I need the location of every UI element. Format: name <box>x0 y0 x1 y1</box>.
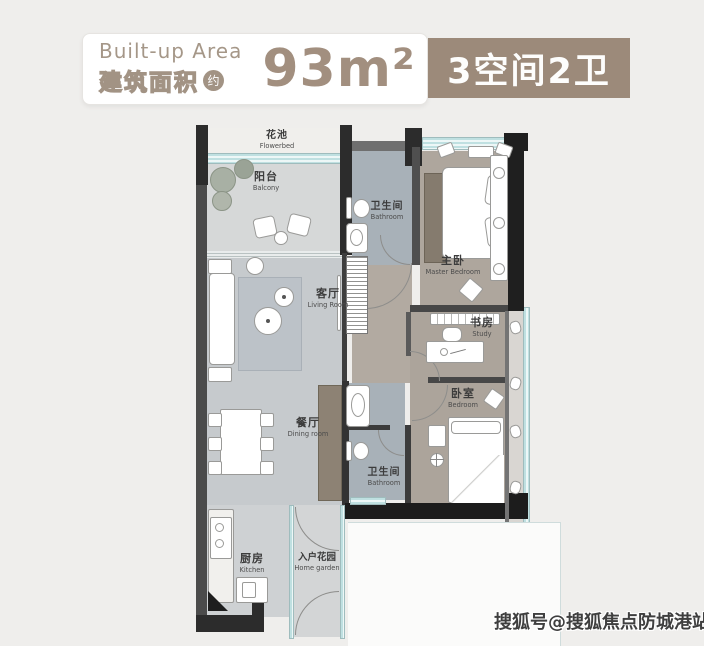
wall-bedroom-bottom <box>345 503 526 519</box>
lamp-cross <box>430 459 444 460</box>
label-bedroom: 卧室 Bedroom <box>434 388 492 409</box>
area-value: 93m² <box>257 43 427 95</box>
wardrobe-knob-icon <box>493 167 505 179</box>
dining-chair <box>208 437 222 451</box>
desk-decor-icon <box>440 348 448 356</box>
plant-icon <box>212 191 232 211</box>
label-master-bedroom: 主卧 Master Bedroom <box>422 255 484 276</box>
balcony-sliding-door <box>206 251 342 258</box>
fridge-triangle-icon <box>208 591 228 611</box>
wall-corridor-study <box>406 312 411 356</box>
bed-blanket <box>448 455 504 503</box>
garden-window-right <box>340 505 345 639</box>
wall-study-bedroom <box>428 377 508 383</box>
label-kitchen: 厨房 Kitchen <box>224 553 280 574</box>
dining-table <box>220 409 262 475</box>
label-balcony: 阳台 Balcony <box>236 171 296 192</box>
storage-cabinet <box>318 385 342 501</box>
toilet-tank <box>346 197 352 219</box>
bed-pillow <box>451 421 501 434</box>
dining-chair <box>260 461 274 475</box>
label-bathroom-lower: 卫生间 Bathroom <box>358 467 410 487</box>
lamp-cross <box>436 453 437 467</box>
label-dining-room: 餐厅 Dining room <box>274 417 342 438</box>
wall-bath-upper-top <box>352 141 412 151</box>
label-flowerbed: 花池 Flowerbed <box>206 130 348 150</box>
area-labels: Built-up Area 建筑面积 约 <box>83 41 257 97</box>
spec-badge: 3空间2卫 <box>428 38 630 98</box>
wall-bath-master <box>412 147 420 265</box>
wall-bedroom-bath <box>405 425 411 507</box>
area-label-zh: 建筑面积 <box>99 63 199 97</box>
sink-basin <box>242 582 256 598</box>
toilet-icon <box>353 442 369 460</box>
nightstand <box>428 425 446 447</box>
approx-circle-icon: 约 <box>203 70 224 91</box>
side-table <box>208 367 232 382</box>
wall-left <box>196 125 207 622</box>
flowerbed-window <box>206 153 348 164</box>
plant-icon <box>210 167 236 193</box>
floor-lamp-icon <box>246 257 264 275</box>
label-living-room: 客厅 Living Room <box>294 288 362 309</box>
sofa <box>209 273 235 365</box>
burner-icon <box>215 523 224 532</box>
dining-chair <box>260 413 274 427</box>
sink-basin <box>351 393 365 417</box>
wall-master-study <box>410 305 508 312</box>
label-home-garden: 入户花园 Home garden <box>291 553 343 572</box>
toilet-tank <box>346 441 352 461</box>
label-study: 书房 Study <box>458 317 506 338</box>
wall-master-right <box>508 147 524 311</box>
area-badge: Built-up Area 建筑面积 约 93m² <box>82 33 428 105</box>
decor-dot <box>282 295 286 299</box>
wall-corner-bottom-right <box>508 493 528 519</box>
wardrobe-knob-icon <box>493 217 505 229</box>
watermark: 搜狐号@搜狐焦点防城港站 <box>494 608 702 634</box>
burner-icon <box>215 539 224 548</box>
garden-window-left <box>289 505 294 639</box>
bath-lower-window <box>350 497 386 505</box>
balcony-table <box>274 231 288 245</box>
dining-chair <box>260 437 274 451</box>
dining-chair <box>208 413 222 427</box>
side-table <box>208 259 232 274</box>
area-label-en: Built-up Area <box>99 41 257 62</box>
lamp-icon <box>430 453 444 467</box>
dining-chair <box>208 461 222 475</box>
label-bathroom-upper: 卫生间 Bathroom <box>364 201 410 221</box>
wardrobe-knob-icon <box>493 263 505 275</box>
decor-dot <box>266 319 270 323</box>
sink-basin <box>350 229 363 246</box>
